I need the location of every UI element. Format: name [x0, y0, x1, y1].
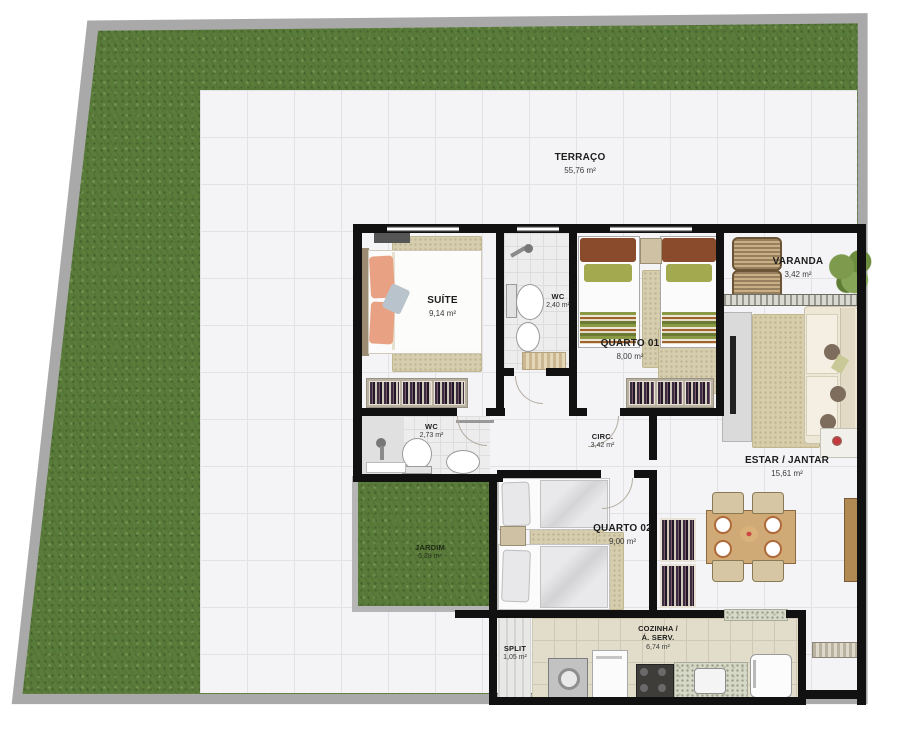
- wall: [353, 408, 457, 416]
- washer-door: [558, 668, 580, 690]
- oven-handle: [596, 656, 622, 659]
- bookshelf-icon: [660, 564, 696, 608]
- wall: [806, 690, 866, 699]
- wall: [455, 610, 658, 618]
- window: [387, 226, 459, 232]
- bath-mat: [366, 462, 406, 473]
- floor-plan: TERRAÇO 55,76 m² SUÍTE 9,14 m² WC 2,40 m…: [0, 0, 900, 732]
- nightstand-icon: [640, 238, 662, 264]
- wall: [496, 368, 514, 376]
- room-label-quarto01: QUARTO 01 8,00 m²: [580, 338, 680, 362]
- dining-chair-icon: [752, 492, 784, 514]
- shower-stem: [380, 446, 384, 460]
- wall: [486, 408, 505, 416]
- plate-icon: [714, 540, 732, 558]
- toilet-tank: [402, 466, 432, 474]
- wall: [620, 408, 724, 416]
- room-label-quarto02: QUARTO 02 9,00 m²: [580, 523, 665, 547]
- window: [517, 226, 559, 232]
- fridge-handle: [753, 660, 756, 688]
- flower-vase-icon: [832, 436, 842, 446]
- sink-icon: [516, 322, 540, 352]
- sink-icon: [446, 450, 480, 474]
- wall: [649, 416, 657, 460]
- wall: [353, 224, 362, 482]
- fridge-icon: [750, 654, 792, 698]
- plate-icon: [714, 516, 732, 534]
- tv-icon: [730, 336, 736, 414]
- wall: [798, 610, 806, 705]
- pillow: [501, 482, 531, 527]
- wall: [569, 224, 577, 416]
- wall: [497, 470, 601, 478]
- window: [610, 226, 692, 232]
- dining-chair-icon: [712, 492, 744, 514]
- plate-icon: [764, 540, 782, 558]
- burner: [658, 668, 666, 676]
- room-label-estar: ESTAR / JANTAR 15,61 m²: [732, 455, 842, 479]
- dining-chair-icon: [752, 560, 784, 582]
- room-label-wc-suite: WC 2,40 m²: [533, 292, 583, 311]
- entry-mat: [812, 642, 858, 658]
- wall: [353, 474, 503, 482]
- room-label-cozinha: COZINHA / Á. SERV. 6,74 m²: [613, 624, 703, 653]
- room-label-wc-social: WC 2,73 m²: [404, 422, 459, 441]
- balcony-railing: [724, 294, 857, 306]
- wall: [489, 697, 806, 705]
- dining-chair-icon: [712, 560, 744, 582]
- wall: [569, 408, 587, 416]
- fruit-bowl-icon: [740, 526, 758, 542]
- nightstand-icon: [500, 526, 526, 546]
- wall: [496, 224, 504, 416]
- wall: [658, 610, 724, 618]
- plate-icon: [764, 516, 782, 534]
- room-label-jardim: JARDIM 5,28 m²: [395, 543, 465, 562]
- pillow: [580, 238, 636, 262]
- burner: [658, 684, 666, 692]
- bookshelf-icon: [660, 518, 696, 562]
- pillow: [662, 238, 716, 262]
- room-label-terraco: TERRAÇO 55,76 m²: [520, 152, 640, 176]
- wall: [489, 474, 497, 618]
- sofa-back: [840, 308, 855, 440]
- pillow: [584, 264, 632, 282]
- wall: [857, 224, 866, 705]
- wall: [546, 368, 577, 376]
- room-label-circ: CIRC. 3,42 m²: [575, 432, 630, 451]
- shower-head-icon: [524, 244, 533, 253]
- pass-through-counter: [724, 609, 788, 621]
- room-label-suite: SUÍTE 9,14 m²: [405, 295, 480, 319]
- kitchen-sink-icon: [694, 668, 726, 694]
- bed-blanket: [540, 480, 608, 528]
- room-label-split: SPLIT 1,05 m²: [496, 644, 534, 663]
- wardrobe-icon: [626, 378, 714, 408]
- burner: [640, 668, 648, 676]
- wall: [716, 224, 724, 416]
- burner: [640, 684, 648, 692]
- pillow: [501, 550, 531, 603]
- tv-panel: [722, 312, 752, 442]
- pillow: [666, 264, 712, 282]
- tv-icon: [374, 233, 410, 243]
- wardrobe-icon: [366, 378, 468, 408]
- room-label-varanda: VARANDA 3,42 m²: [758, 256, 838, 280]
- bed-blanket: [540, 546, 608, 608]
- round-pillow: [830, 386, 846, 402]
